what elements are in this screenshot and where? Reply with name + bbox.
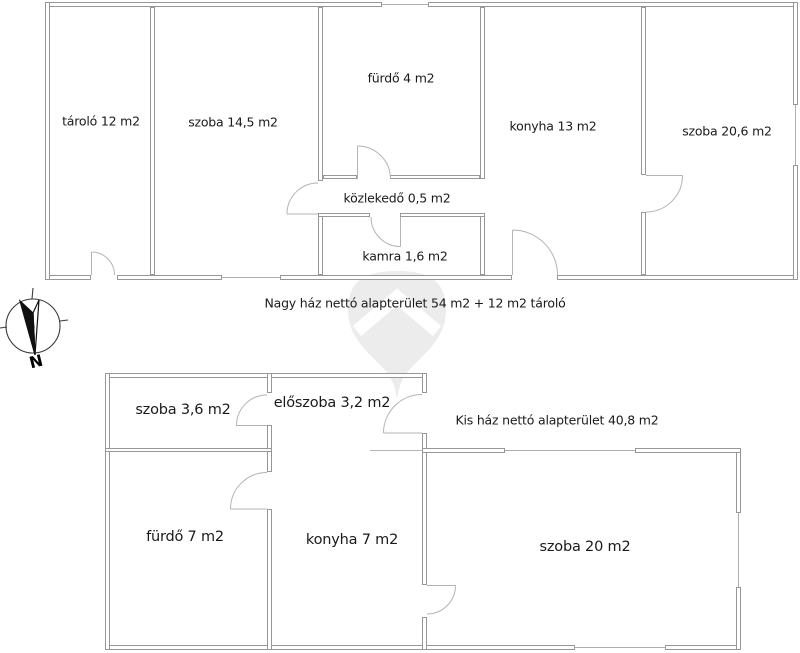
- threshold-line: [370, 450, 424, 451]
- watermark-layer: [0, 0, 800, 653]
- wall-segment: [480, 7, 485, 179]
- compass-north-label: N: [27, 351, 45, 373]
- upper-plan-caption: Nagy ház nettó alapterület 54 m2 + 12 m2…: [264, 296, 565, 311]
- floor-plan-page: N tároló 12 m2 szoba 14,5 m2 fürdő 4 m2 …: [0, 0, 800, 653]
- symbols-layer: N: [0, 0, 800, 653]
- room-label-furdo7: fürdő 7 m2: [146, 529, 224, 545]
- room-label-szoba206: szoba 20,6 m2: [682, 124, 772, 139]
- wall-segment: [793, 165, 798, 280]
- wall-segment: [45, 2, 50, 280]
- wall-segment: [422, 617, 427, 650]
- wall-segment: [318, 213, 323, 275]
- wall-segment: [323, 175, 357, 179]
- wall-segment: [267, 373, 272, 393]
- wall-segment: [641, 212, 646, 275]
- map-pin-watermark: [348, 271, 446, 399]
- window: [736, 513, 741, 587]
- room-label-szoba20: szoba 20 m2: [540, 539, 631, 555]
- wall-segment: [635, 448, 741, 453]
- window: [222, 275, 280, 280]
- wall-segment: [390, 175, 480, 179]
- door-kamra: [371, 217, 401, 247]
- compass-needle-white-half: [33, 300, 39, 355]
- compass-ticks: [0, 288, 68, 328]
- wall-segment: [422, 433, 427, 585]
- window: [575, 645, 665, 650]
- door-furdo4: [358, 146, 391, 179]
- wall-segment: [557, 275, 798, 280]
- wall-segment: [318, 7, 323, 181]
- wall-segment: [105, 645, 575, 650]
- window: [382, 2, 428, 7]
- door-szoba36: [237, 395, 268, 426]
- wall-segment: [641, 7, 646, 175]
- lower-plan-caption: Kis ház nettó alapterület 40,8 m2: [455, 413, 658, 428]
- compass-rose: N: [0, 288, 68, 372]
- wall-segment: [105, 373, 427, 378]
- door-furdo7: [231, 473, 268, 510]
- room-label-konyha7: konyha 7 m2: [306, 532, 398, 548]
- compass-needle-black-half: [20, 301, 35, 355]
- room-label-szoba145: szoba 14,5 m2: [188, 115, 278, 130]
- wall-segment: [45, 275, 91, 280]
- window: [505, 448, 635, 453]
- room-label-konyha13: konyha 13 m2: [510, 119, 597, 134]
- room-label-furdo4: fürdő 4 m2: [368, 71, 435, 86]
- wall-segment: [45, 2, 382, 7]
- door-konyha7: [427, 586, 456, 615]
- room-label-szoba36: szoba 3,6 m2: [135, 402, 230, 418]
- wall-segment: [280, 275, 512, 280]
- wall-segment: [267, 509, 272, 650]
- compass-circle: [6, 299, 60, 353]
- compass-center-dot: [31, 325, 34, 328]
- wall-segment: [793, 2, 798, 105]
- door-szoba206: [646, 176, 683, 213]
- room-label-kozlekedo: közlekedő 0,5 m2: [344, 191, 451, 206]
- wall-segment: [105, 448, 272, 452]
- room-label-kamra: kamra 1,6 m2: [362, 249, 447, 264]
- wall-segment: [150, 7, 155, 275]
- wall-segment: [736, 448, 741, 513]
- wall-segment: [318, 213, 370, 217]
- door-szoba145: [287, 183, 318, 214]
- door-konyha-entrance: [513, 230, 558, 275]
- room-label-taralo: tároló 12 m2: [62, 114, 140, 129]
- wall-segment: [422, 373, 427, 393]
- wall-segment: [105, 373, 110, 650]
- window: [793, 105, 798, 165]
- room-label-eloszoba: előszoba 3,2 m2: [274, 395, 391, 411]
- wall-segment: [480, 213, 485, 275]
- wall-segment: [117, 275, 222, 280]
- door-taralo-entrance: [92, 252, 115, 275]
- wall-segment: [422, 448, 505, 453]
- wall-segment: [736, 587, 741, 650]
- wall-segment: [400, 213, 485, 217]
- wall-segment: [665, 645, 741, 650]
